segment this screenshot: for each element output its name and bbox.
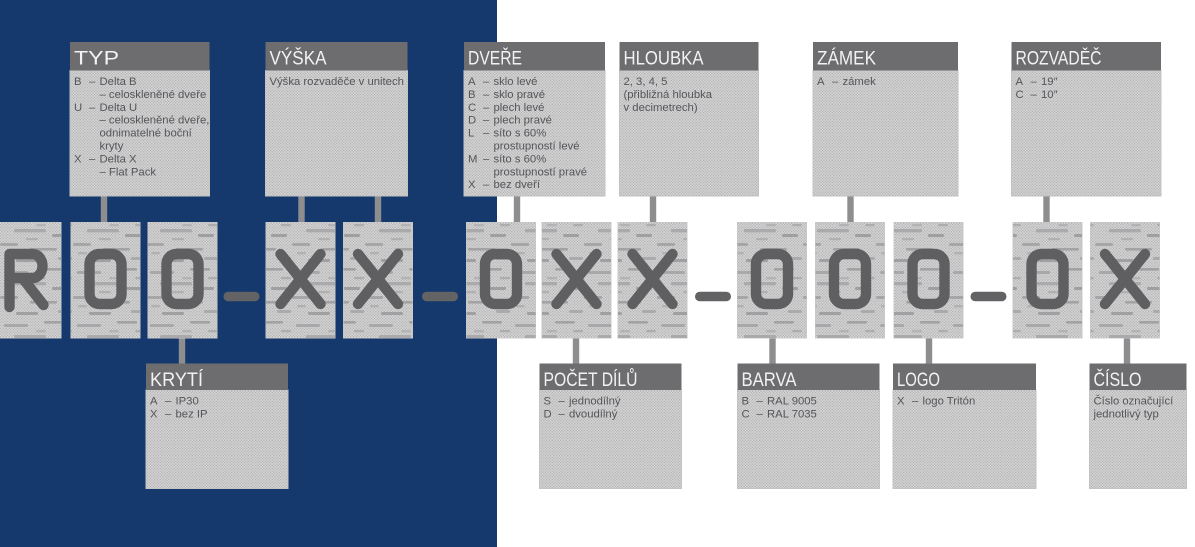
svg-text:KRYTÍ: KRYTÍ (150, 370, 204, 391)
svg-text:v decimetrech): v decimetrech) (624, 102, 698, 114)
svg-text:C–10″: C–10″ (1016, 89, 1058, 101)
svg-text:DVEŘE: DVEŘE (468, 48, 522, 70)
svg-text:– celoskleněné dveře,: – celoskleněné dveře, (100, 115, 210, 127)
svg-text:Výška rozvaděče v unitech: Výška rozvaděče v unitech (270, 76, 404, 88)
svg-text:– celoskleněné dveře: – celoskleněné dveře (100, 89, 207, 101)
svg-text:– Flat Pack: – Flat Pack (100, 166, 157, 178)
svg-text:POČET DÍLŮ: POČET DÍLŮ (544, 369, 638, 391)
svg-text:jednotlivý typ: jednotlivý typ (1093, 408, 1159, 420)
svg-text:BARVA: BARVA (742, 370, 797, 391)
svg-text:prostupností levé: prostupností levé (494, 141, 580, 153)
svg-text:ČÍSLO: ČÍSLO (1094, 369, 1142, 391)
svg-text:ZÁMEK: ZÁMEK (817, 49, 876, 70)
svg-text:HLOUBKA: HLOUBKA (624, 49, 704, 70)
svg-text:A–19″: A–19″ (1016, 76, 1058, 88)
svg-text:VÝŠKA: VÝŠKA (270, 48, 327, 70)
svg-text:odnimatelné boční: odnimatelné boční (100, 128, 193, 140)
svg-text:LOGO: LOGO (897, 370, 940, 391)
svg-text:2, 3, 4, 5: 2, 3, 4, 5 (624, 76, 668, 88)
svg-text:TYP: TYP (74, 49, 119, 70)
svg-text:prostupností pravé: prostupností pravé (494, 166, 588, 178)
svg-text:kryty: kryty (100, 141, 124, 153)
svg-text:(přibližná hloubka: (přibližná hloubka (624, 89, 713, 101)
svg-text:ROZVADĚČ: ROZVADĚČ (1016, 48, 1102, 70)
svg-text:Číslo označující: Číslo označující (1094, 395, 1175, 408)
